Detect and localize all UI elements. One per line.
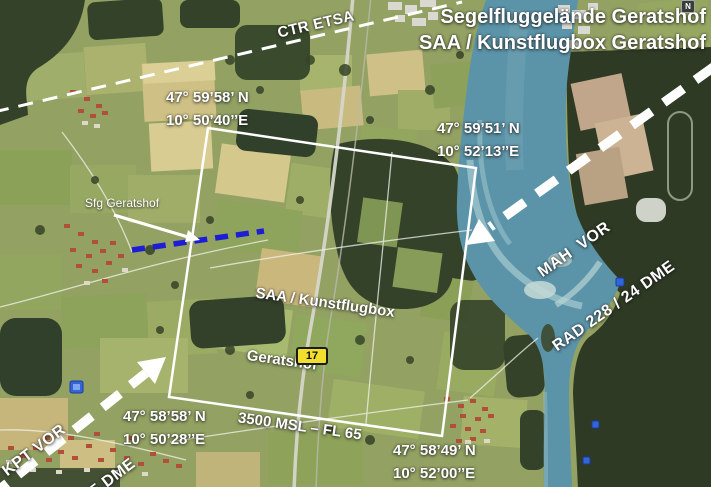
coord-lat: 47° 58’49’ N bbox=[393, 439, 476, 462]
glider-strip-pointer-arrow bbox=[114, 215, 200, 242]
road-sign-17: 17 bbox=[296, 347, 328, 365]
glider-field-label: Sfg Geratshof bbox=[85, 196, 159, 210]
title-line-1: Segelfluggelände Geratshof bbox=[419, 4, 706, 30]
corner-coords-ne: 47° 59’51’ N 10° 52’13’’E bbox=[437, 117, 520, 163]
title-line-2: SAA / Kunstflugbox Geratshof bbox=[419, 30, 706, 56]
box-limits: 3500 MSL – FL 65 bbox=[237, 407, 379, 447]
coord-lat: 47° 59’58’ N bbox=[166, 86, 249, 109]
coord-lon: 10° 50’40’’E bbox=[166, 109, 249, 132]
coord-lat: 47° 59’51’ N bbox=[437, 117, 520, 140]
coord-lon: 10° 52’00’’E bbox=[393, 462, 476, 485]
map-title: Segelfluggelände Geratshof SAA / Kunstfl… bbox=[419, 4, 706, 56]
glider-strip-line bbox=[132, 231, 264, 250]
corner-coords-nw: 47° 59’58’ N 10° 50’40’’E bbox=[166, 86, 249, 132]
aeronautical-map: Segelfluggelände Geratshof SAA / Kunstfl… bbox=[0, 0, 711, 487]
compass-north-icon: N bbox=[681, 0, 695, 13]
corner-coords-se: 47° 58’49’ N 10° 52’00’’E bbox=[393, 439, 476, 485]
box-name-line-1: SAA / Kunstflugbox bbox=[254, 283, 396, 323]
coord-lon: 10° 52’13’’E bbox=[437, 140, 520, 163]
